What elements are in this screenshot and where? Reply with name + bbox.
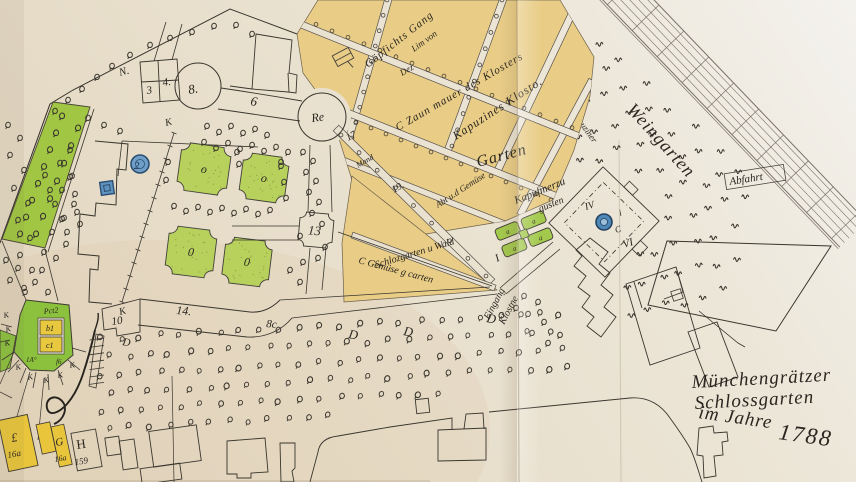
svg-text:10: 10	[111, 314, 124, 327]
svg-text:1A°: 1A°	[26, 356, 37, 364]
svg-text:14.: 14.	[176, 303, 192, 318]
svg-text:f6: f6	[56, 358, 62, 366]
svg-text:Pct2: Pct2	[42, 306, 59, 317]
svg-text:c1: c1	[46, 341, 54, 350]
svg-text:159: 159	[74, 455, 89, 467]
svg-text:2: 2	[134, 160, 140, 172]
svg-text:4.: 4.	[162, 76, 172, 89]
svg-text:b1: b1	[46, 324, 54, 333]
svg-text:Re: Re	[309, 109, 325, 125]
svg-text:8c: 8c	[266, 318, 278, 331]
